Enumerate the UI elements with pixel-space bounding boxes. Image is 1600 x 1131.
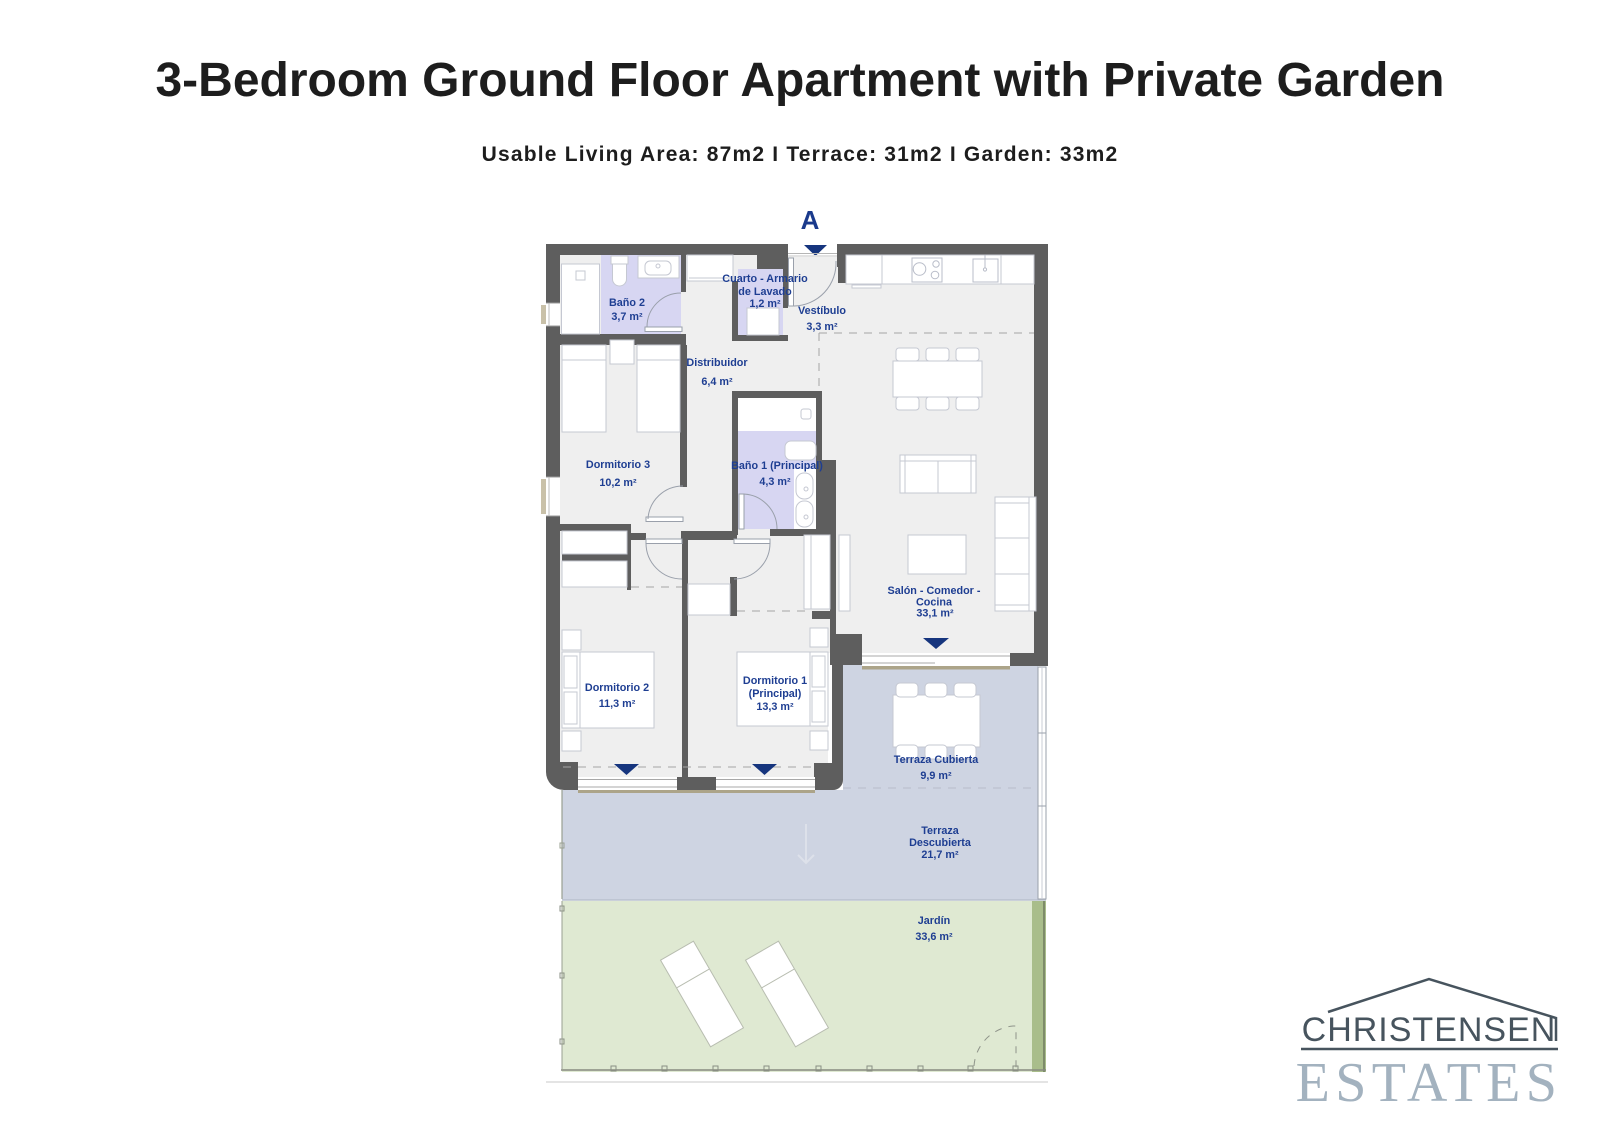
svg-text:Baño 2: Baño 2 xyxy=(609,297,645,309)
svg-text:Jardín: Jardín xyxy=(918,915,950,927)
svg-text:Dormitorio 2: Dormitorio 2 xyxy=(585,682,649,694)
svg-text:Cuarto - Armario: Cuarto - Armario xyxy=(722,273,808,285)
svg-text:Vestíbulo: Vestíbulo xyxy=(798,305,846,317)
svg-text:33,1 m²: 33,1 m² xyxy=(916,608,954,620)
svg-text:A: A xyxy=(801,205,820,235)
svg-text:Descubierta: Descubierta xyxy=(909,837,972,849)
svg-text:(Principal): (Principal) xyxy=(749,688,802,700)
svg-text:21,7 m²: 21,7 m² xyxy=(921,849,959,861)
svg-text:Usable Living Area: 87m2 I Ter: Usable Living Area: 87m2 I Terrace: 31m2… xyxy=(482,143,1119,166)
svg-text:4,3 m²: 4,3 m² xyxy=(759,476,791,488)
svg-text:3-Bedroom Ground Floor Apartme: 3-Bedroom Ground Floor Apartment with Pr… xyxy=(155,54,1444,107)
svg-text:Terraza Cubierta: Terraza Cubierta xyxy=(894,754,979,766)
svg-text:Baño 1 (Principal): Baño 1 (Principal) xyxy=(731,460,823,472)
svg-text:Dormitorio 1: Dormitorio 1 xyxy=(743,675,807,687)
svg-text:6,4 m²: 6,4 m² xyxy=(701,376,733,388)
svg-text:33,6 m²: 33,6 m² xyxy=(915,931,953,943)
svg-text:9,9 m²: 9,9 m² xyxy=(920,770,952,782)
svg-text:10,2 m²: 10,2 m² xyxy=(599,477,637,489)
svg-text:Salón - Comedor -: Salón - Comedor - xyxy=(888,585,981,597)
svg-text:CHRISTENSEN: CHRISTENSEN xyxy=(1302,1011,1557,1049)
svg-text:13,3 m²: 13,3 m² xyxy=(756,701,794,713)
svg-text:1,2 m²: 1,2 m² xyxy=(749,298,781,310)
svg-text:Dormitorio 3: Dormitorio 3 xyxy=(586,459,650,471)
svg-text:3,3 m²: 3,3 m² xyxy=(806,321,838,333)
svg-text:Distribuidor: Distribuidor xyxy=(686,357,748,369)
svg-text:ESTATES: ESTATES xyxy=(1296,1052,1563,1114)
svg-text:11,3 m²: 11,3 m² xyxy=(599,698,636,710)
svg-text:Terraza: Terraza xyxy=(921,825,960,837)
svg-text:de Lavado: de Lavado xyxy=(738,286,792,298)
svg-text:3,7 m²: 3,7 m² xyxy=(611,311,643,323)
